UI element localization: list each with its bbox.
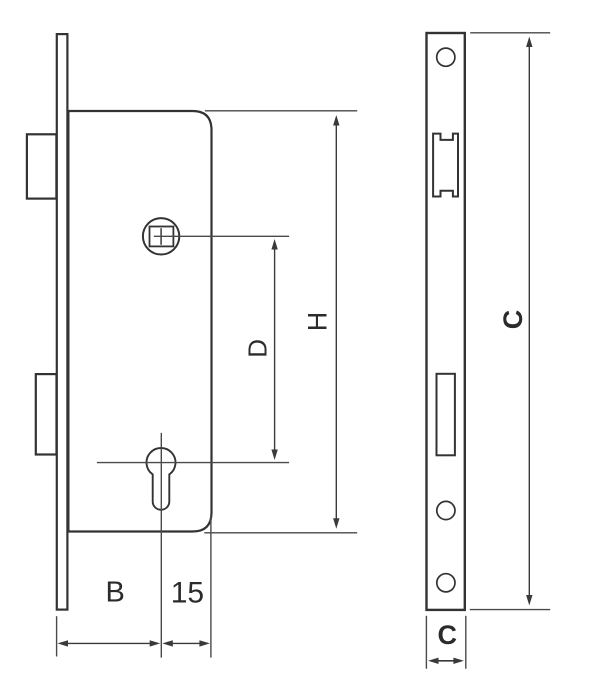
svg-text:15: 15: [171, 576, 204, 609]
svg-text:H: H: [302, 312, 332, 332]
svg-text:C: C: [498, 310, 528, 330]
svg-text:B: B: [106, 577, 125, 609]
svg-text:C: C: [437, 620, 457, 650]
svg-text:D: D: [242, 339, 272, 358]
